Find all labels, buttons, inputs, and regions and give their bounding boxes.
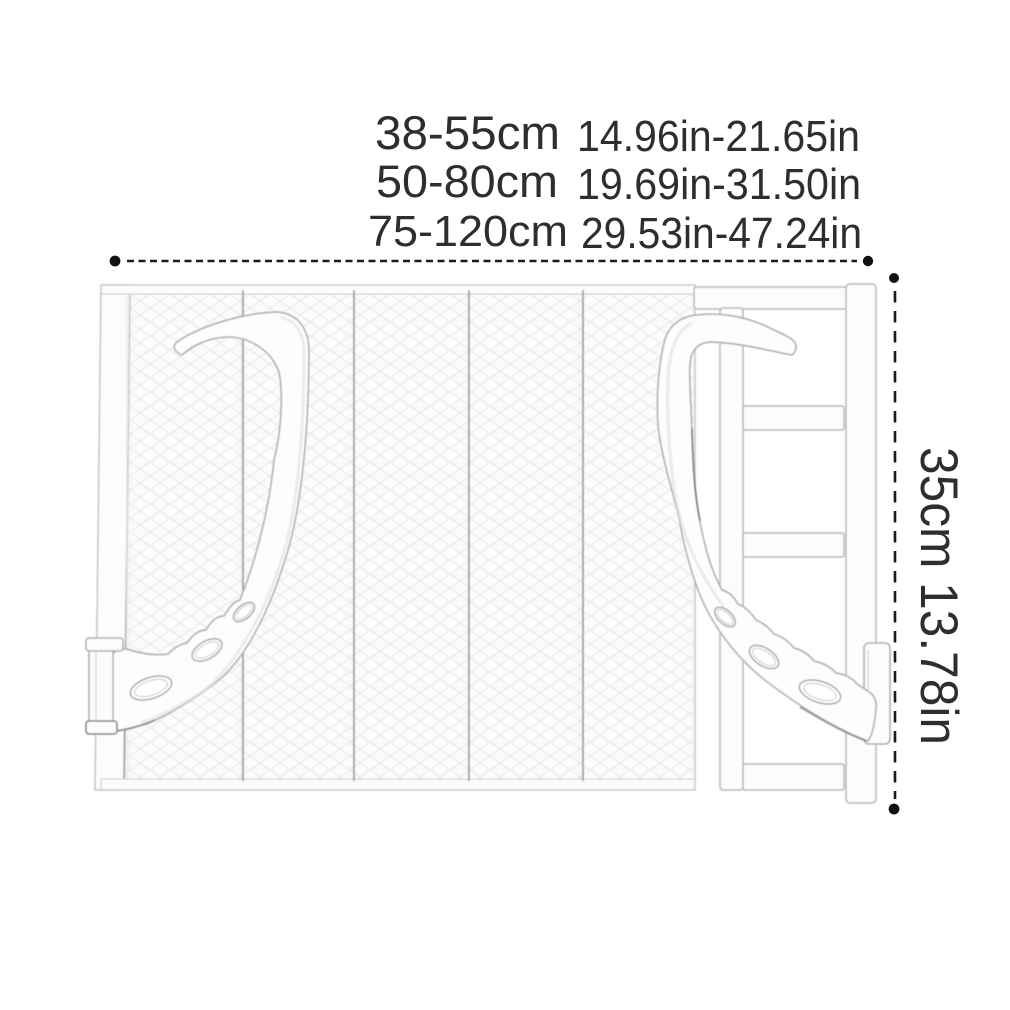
svg-text:19.69in-31.50in: 19.69in-31.50in (577, 160, 861, 209)
svg-text:75-120cm: 75-120cm (368, 207, 568, 256)
svg-text:29.53in-47.24in: 29.53in-47.24in (581, 209, 862, 258)
svg-text:14.96in-21.65in: 14.96in-21.65in (577, 112, 860, 161)
svg-text:50-80cm: 50-80cm (376, 156, 558, 207)
svg-text:35cm 13.78in: 35cm 13.78in (909, 447, 968, 745)
svg-text:38-55cm: 38-55cm (375, 106, 560, 159)
